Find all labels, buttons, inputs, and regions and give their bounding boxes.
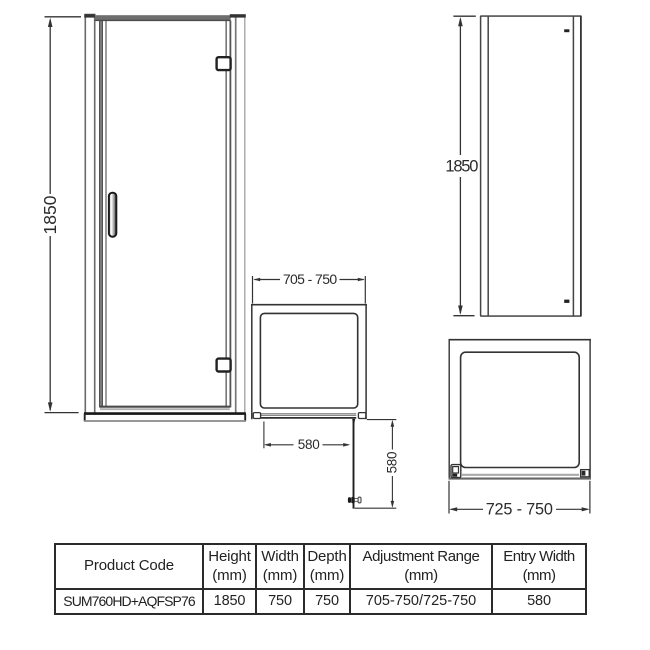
- svg-text:1850: 1850: [445, 158, 478, 176]
- svg-text:580: 580: [385, 452, 400, 474]
- svg-text:580: 580: [298, 437, 320, 452]
- svg-text:1850: 1850: [40, 195, 60, 234]
- svg-text:725 - 750: 725 - 750: [486, 501, 553, 519]
- svg-text:705 - 750: 705 - 750: [283, 271, 338, 287]
